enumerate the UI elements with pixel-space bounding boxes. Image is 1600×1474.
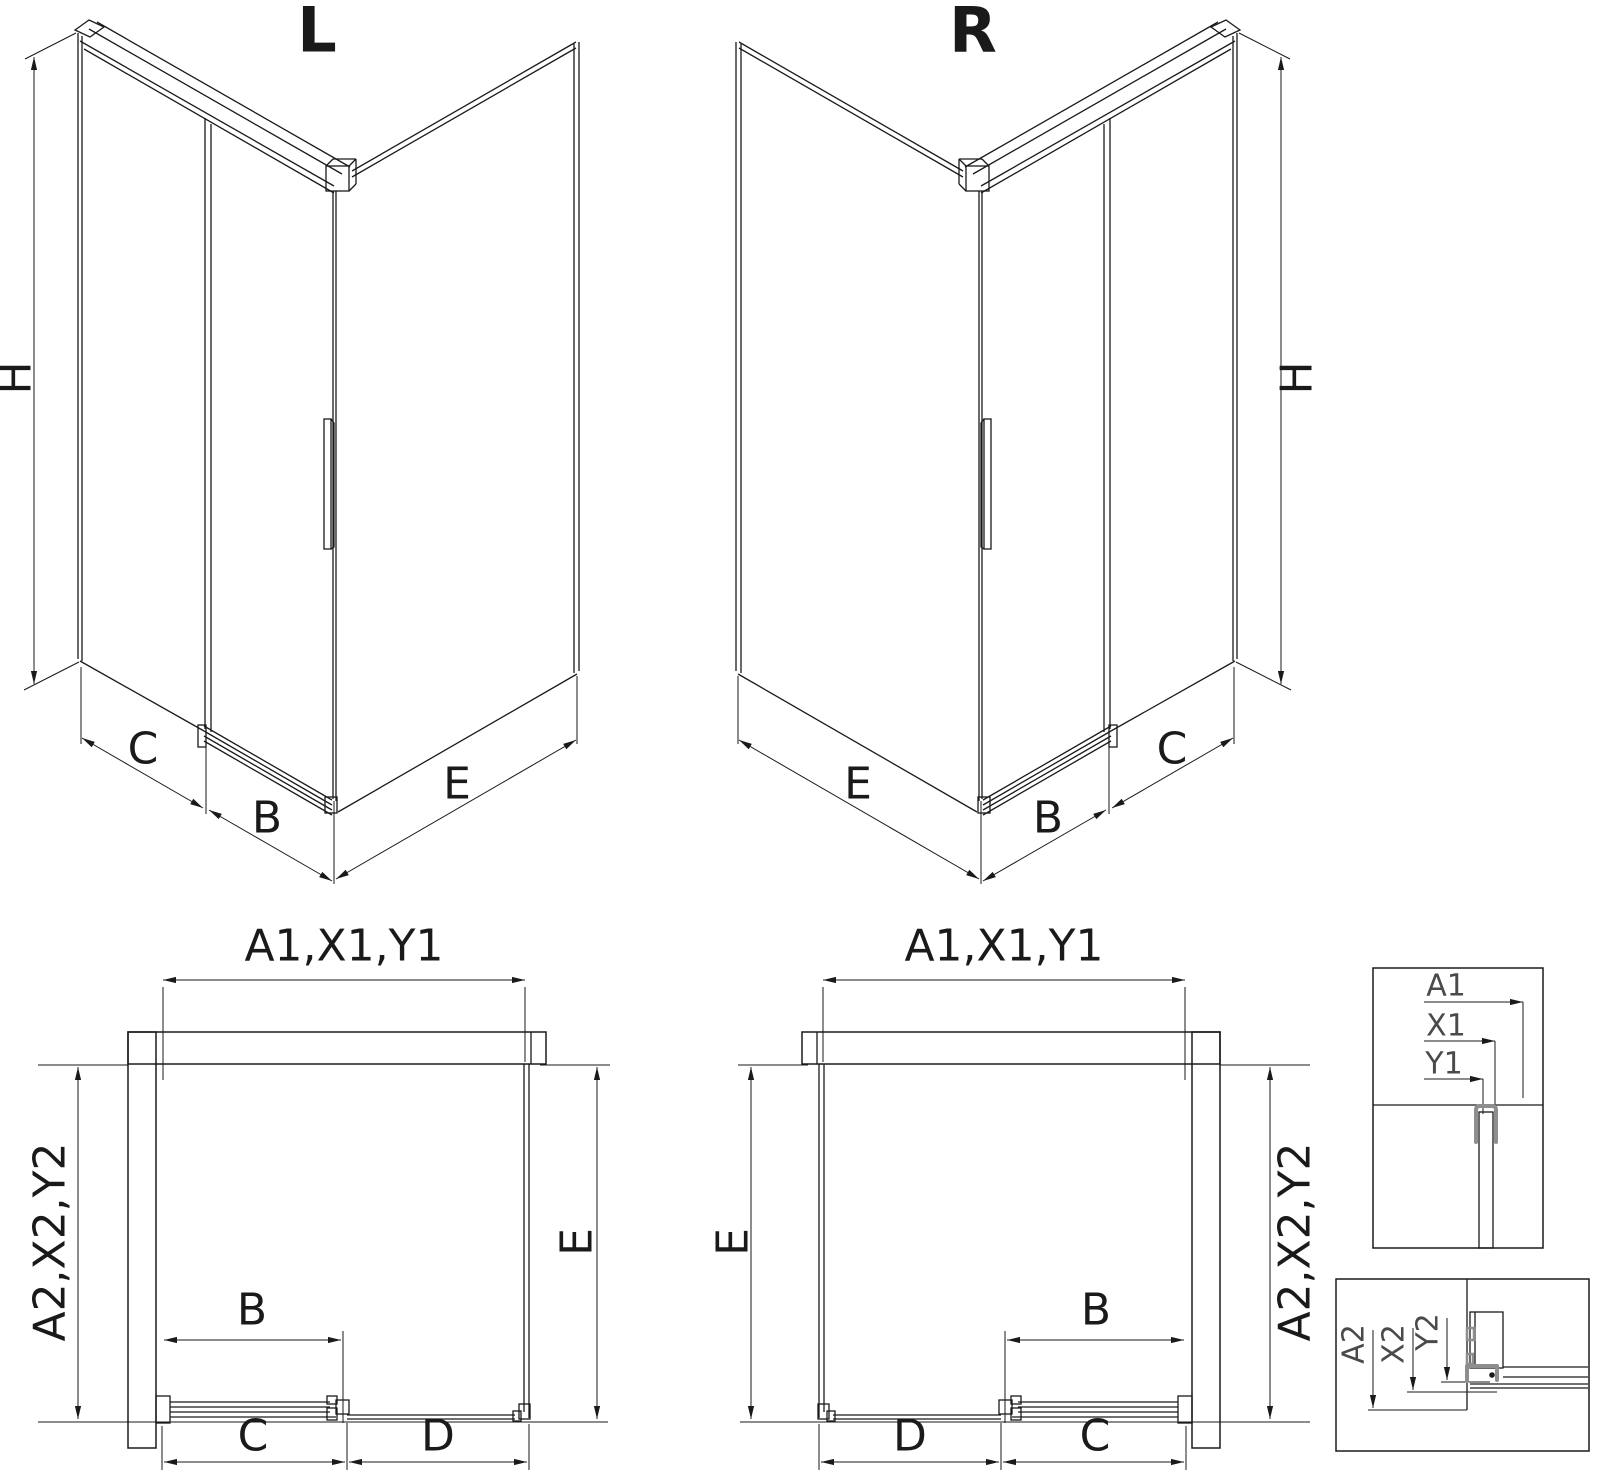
- plan-left-depth-dim-label: A2,X2,Y2: [25, 1142, 76, 1341]
- shower-enclosure-technical-drawing: L H C B E R H C B E A1,X1,Y1 A2,X2,Y2 B …: [0, 0, 1600, 1474]
- iso-right-side-panel-dim-label: E: [844, 759, 872, 810]
- plan-left-opening-dim-label: D: [421, 1411, 455, 1462]
- plan-right-side-wall: [1192, 1032, 1220, 1448]
- plan-left-travel-dim-label: C: [238, 1411, 269, 1462]
- detail-y1-label: Y1: [1424, 1047, 1462, 1082]
- iso-right-door-dim-label: B: [1033, 793, 1063, 844]
- iso-left-back-panel-dim-label: C: [128, 724, 159, 775]
- detail-roller: [1489, 1372, 1495, 1378]
- plan-right-view: A1,X1,Y1 A2,X2,Y2 B E D C: [708, 921, 1321, 1471]
- plan-left-width-dim-label: A1,X1,Y1: [244, 921, 443, 972]
- iso-left-door-dim-label: B: [252, 793, 282, 844]
- iso-left-side-panel-dim-label: E: [443, 759, 471, 810]
- detail-depth-inset: A2 X2 Y2: [1336, 1279, 1589, 1451]
- plan-right-door-dim-label: B: [1081, 1285, 1111, 1336]
- detail-depth-frame: [1336, 1279, 1589, 1451]
- iso-left-title: L: [297, 0, 337, 67]
- plan-left-top-wall: [128, 1032, 546, 1064]
- iso-right-height-dim-label: H: [1272, 361, 1323, 394]
- plan-left-side-wall: [128, 1032, 156, 1448]
- detail-x2-label: X2: [1377, 1324, 1412, 1364]
- iso-left-view: L H C B E: [0, 0, 579, 884]
- iso-left-height-dim-label: H: [0, 361, 42, 394]
- plan-right-top-wall: [802, 1032, 1220, 1064]
- drawing-page: L H C B E R H C B E A1,X1,Y1 A2,X2,Y2 B …: [0, 0, 1600, 1474]
- iso-right-view: R H C B E: [736, 0, 1323, 884]
- plan-right-depth-dim-label: A2,X2,Y2: [1270, 1142, 1321, 1341]
- plan-right-opening-dim-label: D: [893, 1411, 927, 1462]
- plan-left-view: A1,X1,Y1 A2,X2,Y2 B E C D: [25, 921, 611, 1471]
- plan-right-side-dim-label: E: [708, 1228, 759, 1256]
- detail-rail-section: [1467, 1312, 1588, 1388]
- plan-right-travel-dim-label: C: [1080, 1411, 1111, 1462]
- detail-glass-section: [1479, 1112, 1493, 1248]
- detail-width-inset: A1 X1 Y1: [1373, 968, 1543, 1248]
- detail-a1-label: A1: [1426, 969, 1466, 1004]
- detail-y2-label: Y2: [1411, 1313, 1446, 1351]
- plan-left-side-dim-label: E: [552, 1228, 603, 1256]
- plan-right-width-dim-label: A1,X1,Y1: [904, 921, 1103, 972]
- iso-right-title: R: [949, 0, 997, 67]
- detail-a2-label: A2: [1337, 1324, 1372, 1364]
- iso-right-back-panel-dim-label: C: [1157, 724, 1188, 775]
- plan-left-door-dim-label: B: [237, 1285, 267, 1336]
- detail-x1-label: X1: [1426, 1009, 1466, 1044]
